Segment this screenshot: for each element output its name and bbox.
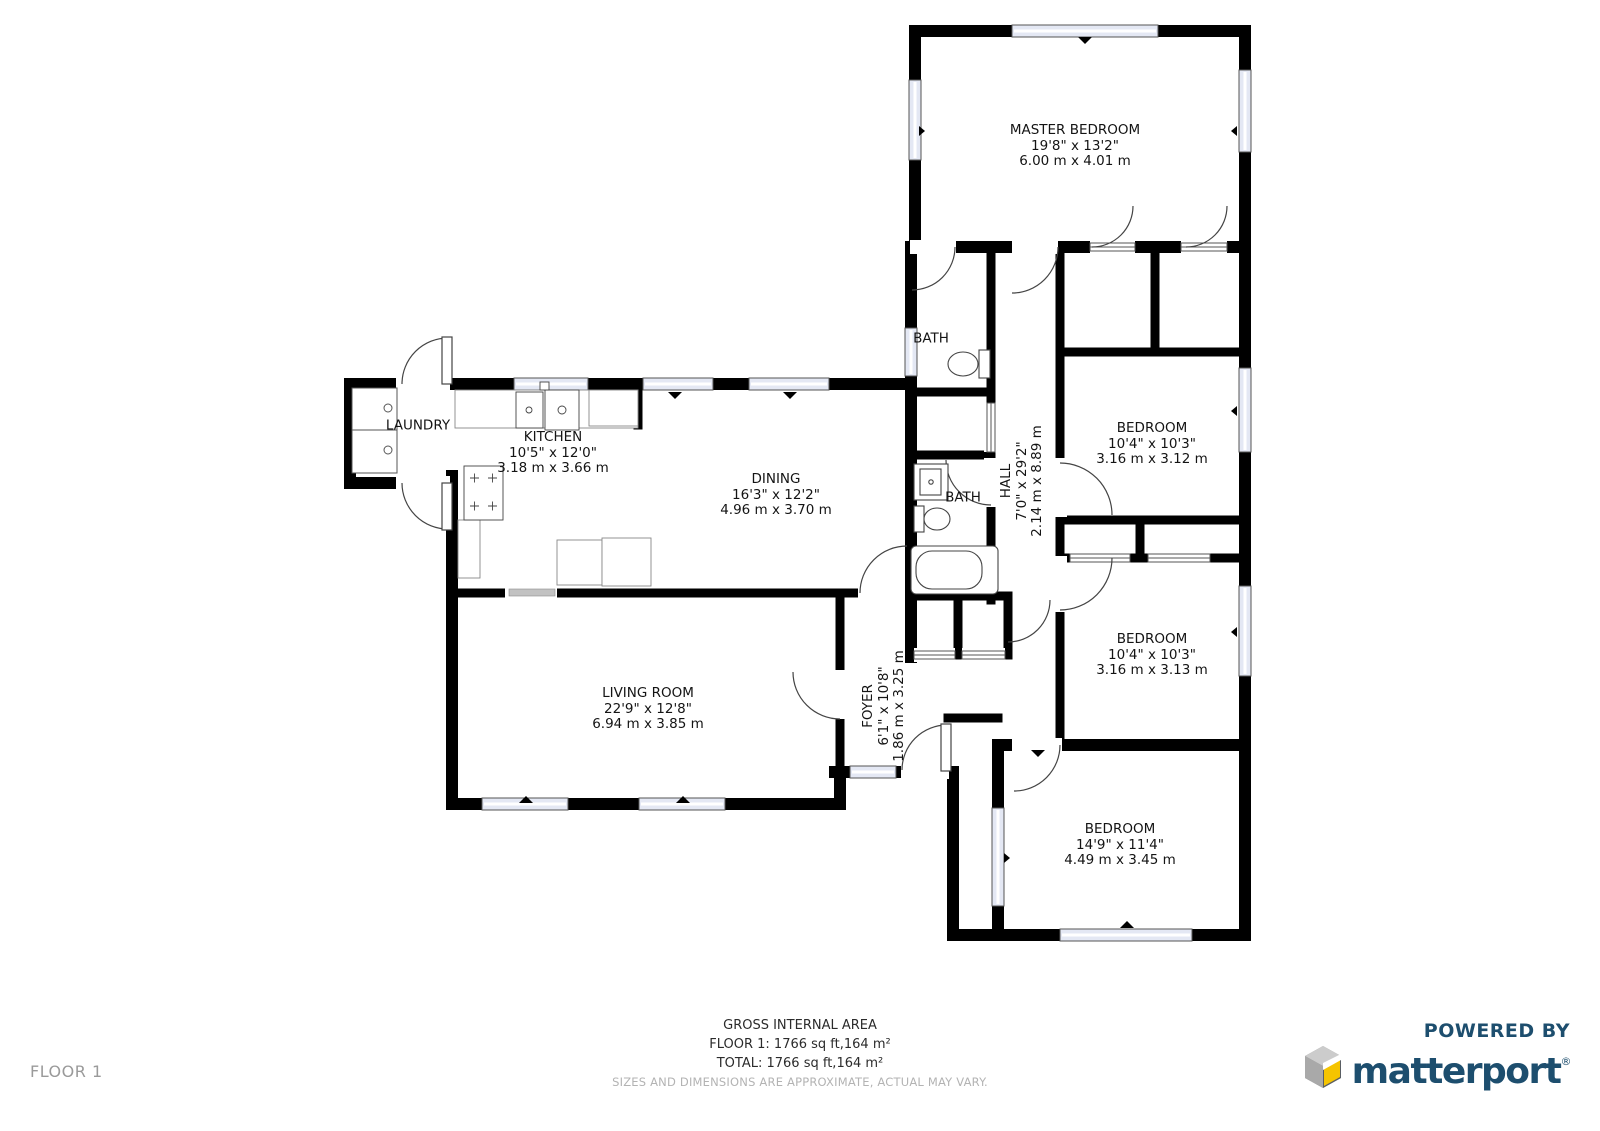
room-dims-metric: 4.49 m x 3.45 m — [1064, 853, 1176, 869]
cabinet — [589, 390, 638, 426]
room-name: BEDROOM — [1064, 822, 1176, 838]
room-name: FOYER — [861, 650, 877, 762]
room-dims-metric: 4.96 m x 3.70 m — [720, 503, 832, 519]
room-name: MASTER BEDROOM — [1010, 123, 1140, 139]
room-label-dining: DINING 16'3" x 12'2" 4.96 m x 3.70 m — [720, 472, 832, 519]
room-dims-imperial: 10'4" x 10'3" — [1096, 436, 1208, 452]
room-dims-metric: 3.16 m x 3.12 m — [1096, 452, 1208, 468]
room-label-master-bedroom: MASTER BEDROOM 19'8" x 13'2" 6.00 m x 4.… — [1010, 123, 1140, 170]
room-dims-imperial: 22'9" x 12'8" — [592, 701, 704, 717]
floorplan-page: MASTER BEDROOM 19'8" x 13'2" 6.00 m x 4.… — [0, 0, 1600, 1131]
room-name: BEDROOM — [1096, 421, 1208, 437]
room-name: LIVING ROOM — [592, 686, 704, 702]
room-name: LAUNDRY — [386, 418, 450, 434]
room-dims-metric: 6.00 m x 4.01 m — [1010, 154, 1140, 170]
room-dims-imperial: 10'4" x 10'3" — [1096, 647, 1208, 663]
toilet-icon — [914, 506, 924, 532]
room-label-kitchen: KITCHEN 10'5" x 12'0" 3.18 m x 3.66 m — [497, 430, 609, 477]
room-label-bath-upper: BATH — [913, 331, 949, 347]
room-dims-imperial: 14'9" x 11'4" — [1064, 837, 1176, 853]
room-dims-imperial: 10'5" x 12'0" — [497, 445, 609, 461]
room-name: KITCHEN — [497, 430, 609, 446]
room-label-bedroom-2: BEDROOM 10'4" x 10'3" 3.16 m x 3.13 m — [1096, 632, 1208, 679]
cabinet — [458, 520, 480, 578]
room-name: BEDROOM — [1096, 632, 1208, 648]
room-dims-imperial: 7'0" x 29'2" — [1014, 425, 1030, 537]
room-label-bath-lower: BATH — [945, 490, 981, 506]
matterport-branding: POWERED BY matterport® — [1303, 1020, 1570, 1090]
room-label-living-room: LIVING ROOM 22'9" x 12'8" 6.94 m x 3.85 … — [592, 686, 704, 733]
powered-by-text: POWERED BY — [1303, 1020, 1570, 1042]
room-dims-metric: 1.86 m x 3.25 m — [892, 650, 908, 762]
room-label-bedroom-3: BEDROOM 14'9" x 11'4" 4.49 m x 3.45 m — [1064, 822, 1176, 869]
room-dims-metric: 6.94 m x 3.85 m — [592, 717, 704, 733]
island — [602, 538, 651, 586]
floor-label: FLOOR 1 — [30, 1062, 103, 1081]
room-dims-metric: 2.14 m x 8.89 m — [1030, 425, 1046, 537]
room-name: BATH — [913, 331, 949, 347]
kitchen-fixtures — [455, 382, 651, 586]
wall-markers — [519, 37, 1237, 928]
floorplan-drawing — [0, 0, 1600, 1131]
room-dims-metric: 3.16 m x 3.13 m — [1096, 663, 1208, 679]
room-label-bedroom-1: BEDROOM 10'4" x 10'3" 3.16 m x 3.12 m — [1096, 421, 1208, 468]
room-label-hall: HALL 7'0" x 29'2" 2.14 m x 8.89 m — [999, 425, 1046, 537]
toilet-icon — [979, 350, 990, 378]
registered-mark: ® — [1561, 1055, 1571, 1068]
room-dims-imperial: 6'1" x 10'8" — [876, 650, 892, 762]
room-name: BATH — [945, 490, 981, 506]
room-dims-metric: 3.18 m x 3.66 m — [497, 461, 609, 477]
threshold-step — [509, 589, 555, 596]
room-dims-imperial: 19'8" x 13'2" — [1010, 138, 1140, 154]
island — [557, 540, 602, 585]
room-dims-imperial: 16'3" x 12'2" — [720, 487, 832, 503]
matterport-cube-icon — [1303, 1045, 1343, 1089]
room-label-laundry: LAUNDRY — [386, 418, 450, 434]
room-name: HALL — [999, 425, 1015, 537]
matterport-name: matterport — [1352, 1051, 1561, 1092]
room-name: DINING — [720, 472, 832, 488]
room-label-foyer: FOYER 6'1" x 10'8" 1.86 m x 3.25 m — [861, 650, 908, 762]
interior-walls — [452, 247, 1245, 772]
matterport-wordmark: matterport® — [1352, 1044, 1570, 1090]
